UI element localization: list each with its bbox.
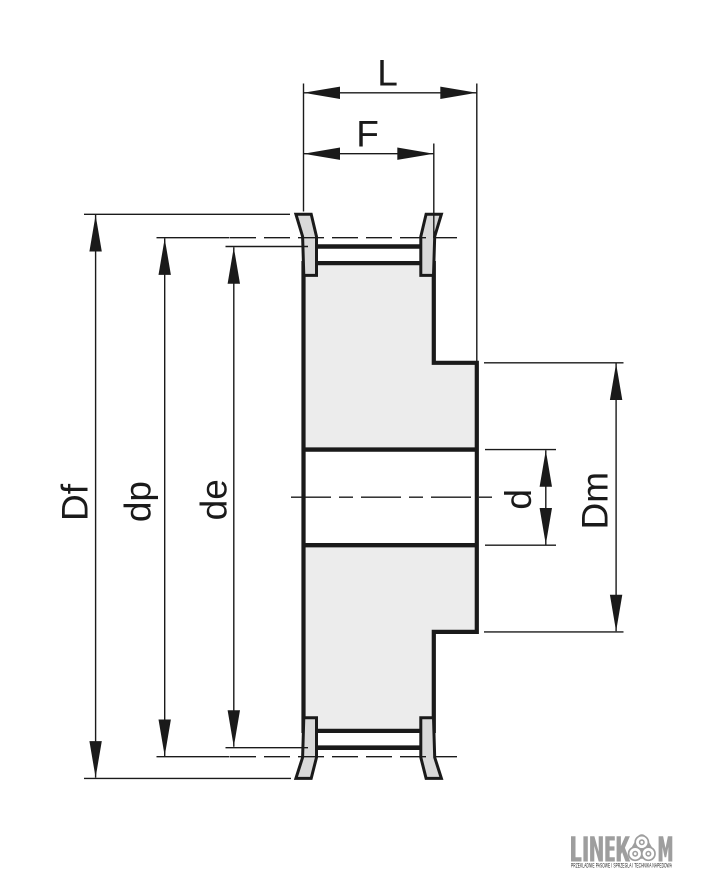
svg-text:dp: dp (118, 481, 159, 522)
svg-text:Df: Df (54, 483, 95, 521)
svg-text:F: F (356, 113, 379, 154)
svg-text:d: d (498, 489, 539, 510)
svg-text:Dm: Dm (575, 472, 616, 530)
svg-text:de: de (194, 479, 235, 520)
svg-text:L: L (377, 52, 398, 93)
svg-text:PRZEKLADNIE PASOWE I SPRZEGLA: PRZEKLADNIE PASOWE I SPRZEGLA I TECHNIKA… (571, 863, 672, 870)
